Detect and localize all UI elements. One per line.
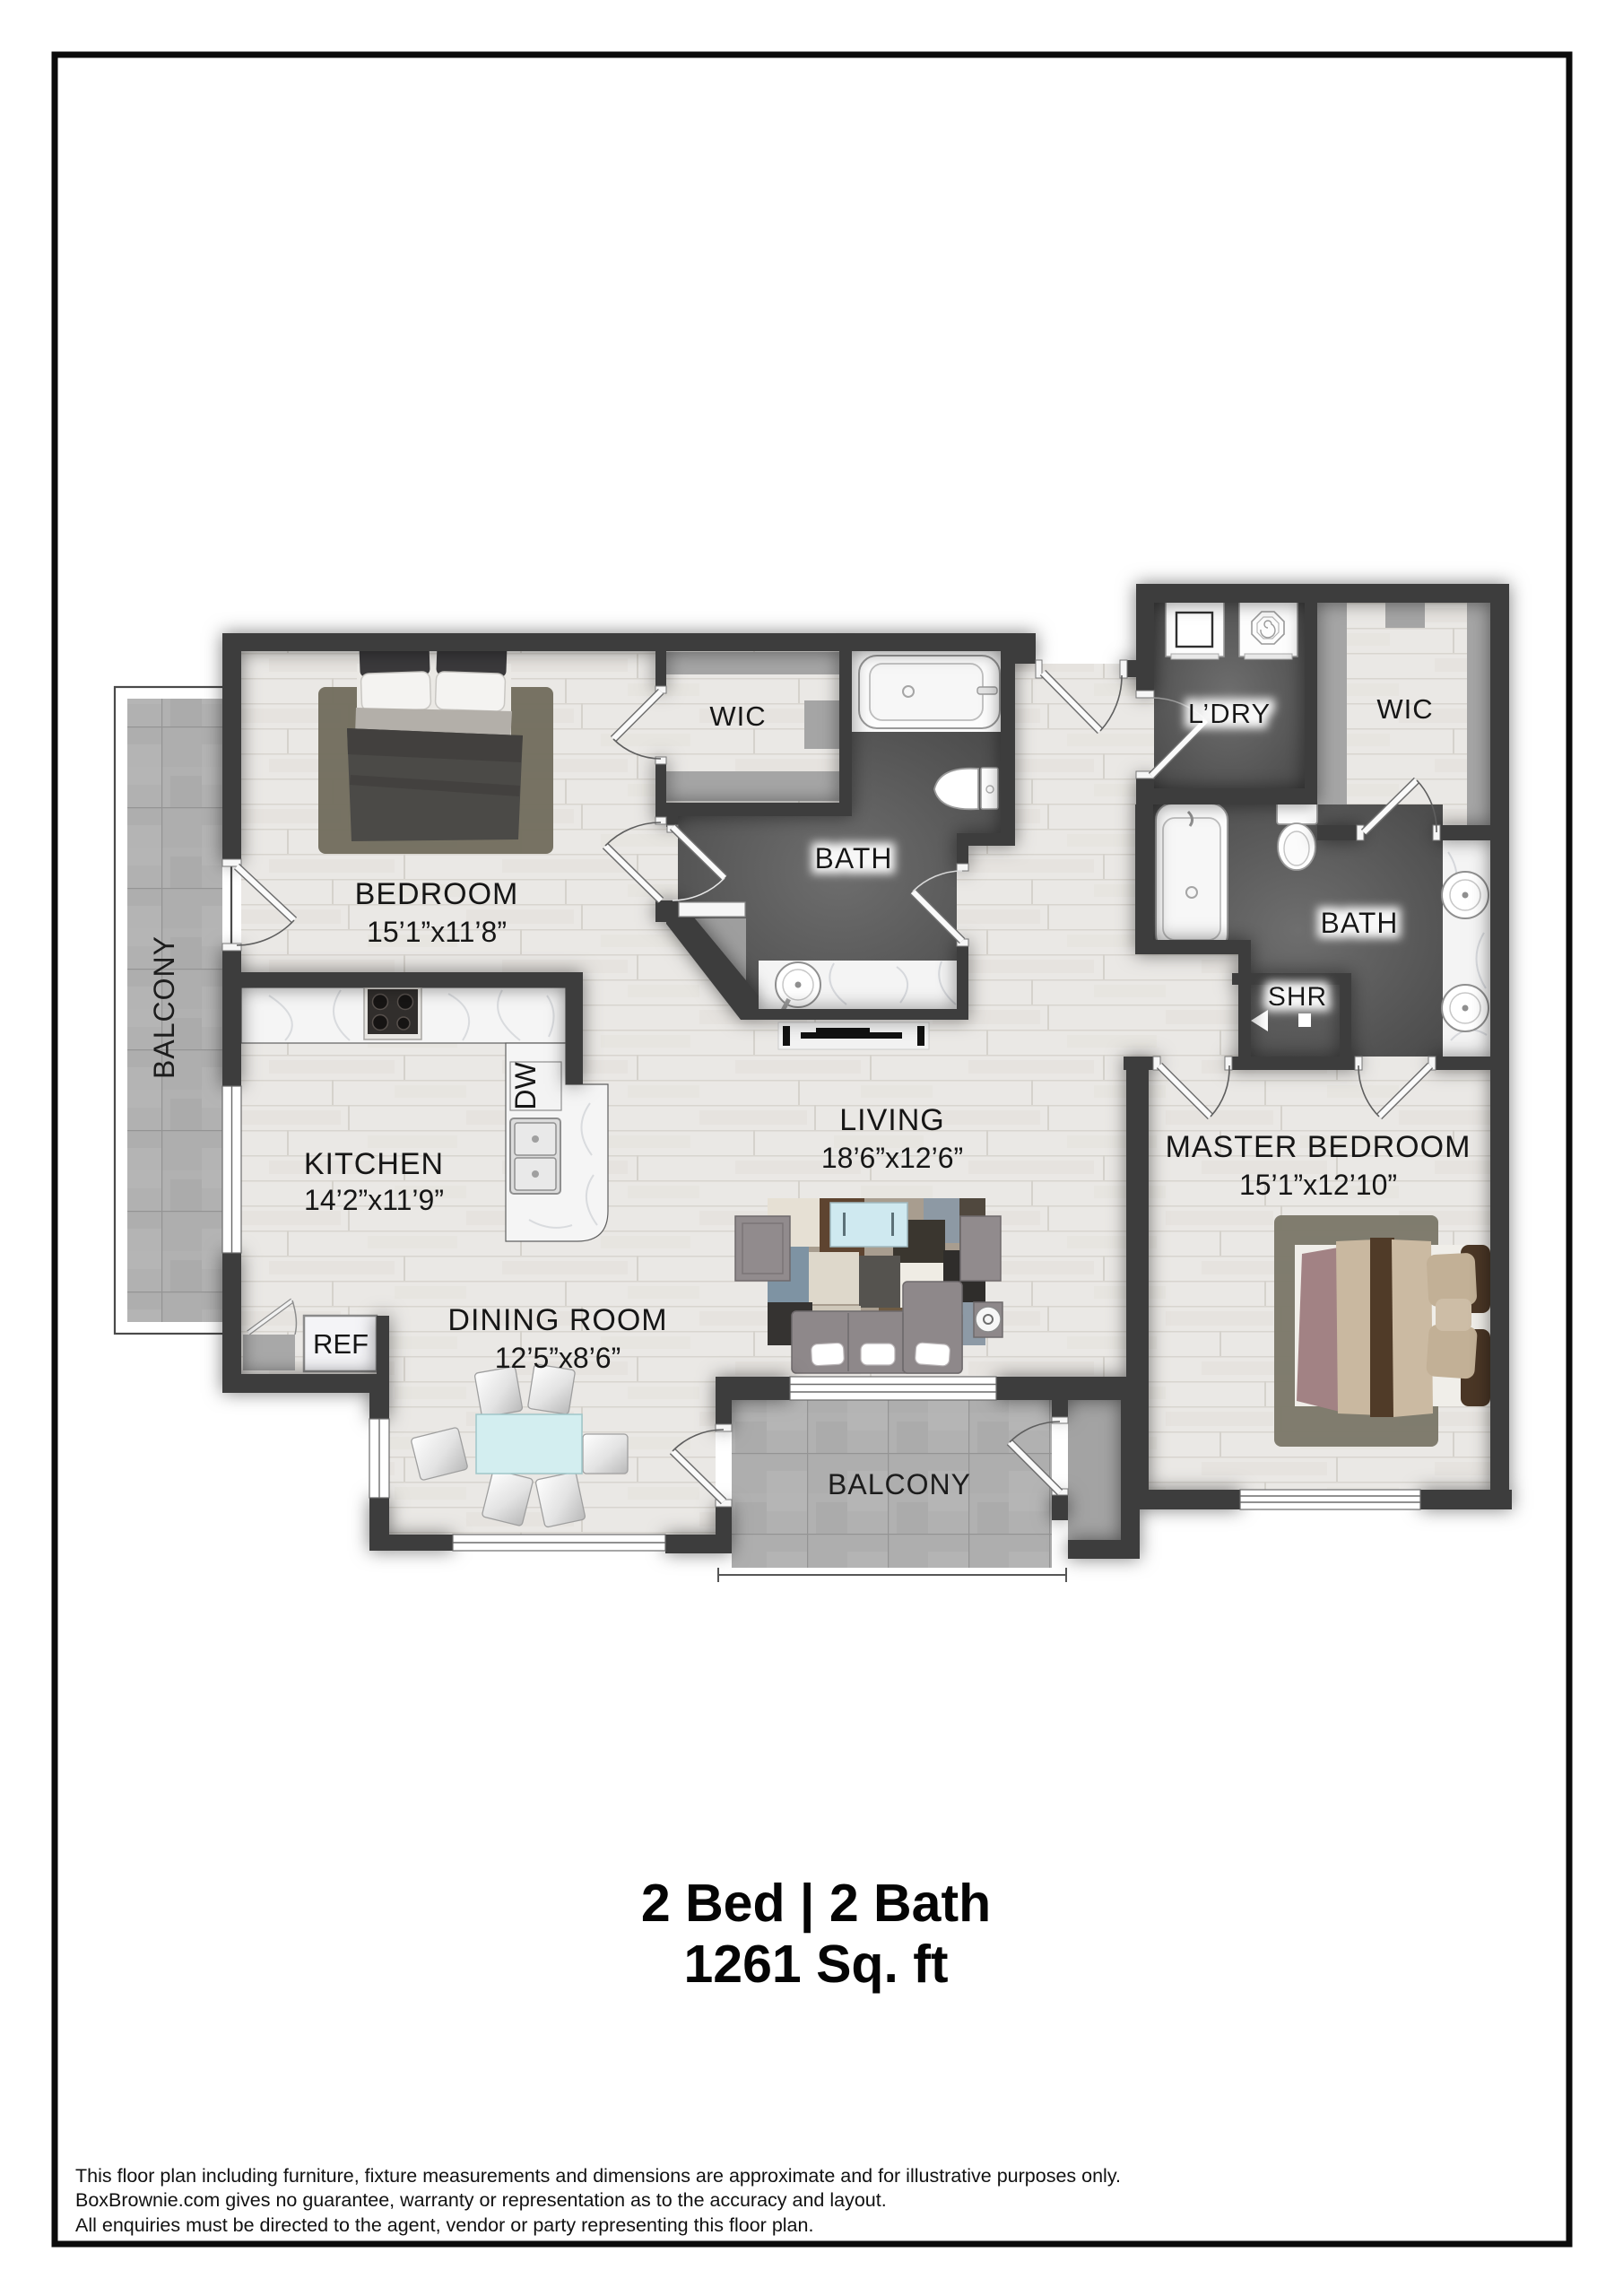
svg-text:SHR: SHR	[1268, 982, 1327, 1012]
svg-text:MASTER BEDROOM: MASTER BEDROOM	[1166, 1130, 1471, 1164]
svg-text:15’1”x12’10”: 15’1”x12’10”	[1239, 1169, 1397, 1201]
svg-text:15’1”x11’8”: 15’1”x11’8”	[367, 916, 507, 948]
svg-text:L’DRY: L’DRY	[1188, 698, 1271, 729]
svg-text:BEDROOM: BEDROOM	[355, 877, 519, 911]
svg-text:KITCHEN: KITCHEN	[304, 1147, 444, 1181]
svg-text:BALCONY: BALCONY	[148, 935, 180, 1079]
svg-text:14’2”x11’9”: 14’2”x11’9”	[304, 1184, 444, 1216]
svg-text:WIC: WIC	[1376, 693, 1433, 725]
svg-text:1261 Sq. ft: 1261 Sq. ft	[683, 1935, 948, 1994]
svg-text:BATH: BATH	[815, 842, 893, 874]
svg-text:BoxBrownie.com gives no guaran: BoxBrownie.com gives no guarantee, warra…	[75, 2189, 887, 2211]
svg-text:BALCONY: BALCONY	[828, 1468, 971, 1500]
svg-text:REF: REF	[313, 1328, 369, 1360]
svg-text:18’6”x12’6”: 18’6”x12’6”	[821, 1142, 963, 1174]
svg-text:DW: DW	[509, 1062, 542, 1110]
svg-text:DINING ROOM: DINING ROOM	[447, 1303, 667, 1337]
svg-text:2 Bed | 2 Bath: 2 Bed | 2 Bath	[641, 1874, 991, 1934]
svg-text:12’5”x8’6”: 12’5”x8’6”	[495, 1342, 621, 1374]
svg-text:BATH: BATH	[1321, 907, 1399, 939]
svg-text:All enquiries must be directed: All enquiries must be directed to the ag…	[75, 2214, 813, 2236]
svg-text:LIVING: LIVING	[839, 1103, 944, 1137]
svg-text:WIC: WIC	[709, 700, 766, 732]
svg-text:This floor plan including furn: This floor plan including furniture, fix…	[75, 2165, 1121, 2187]
